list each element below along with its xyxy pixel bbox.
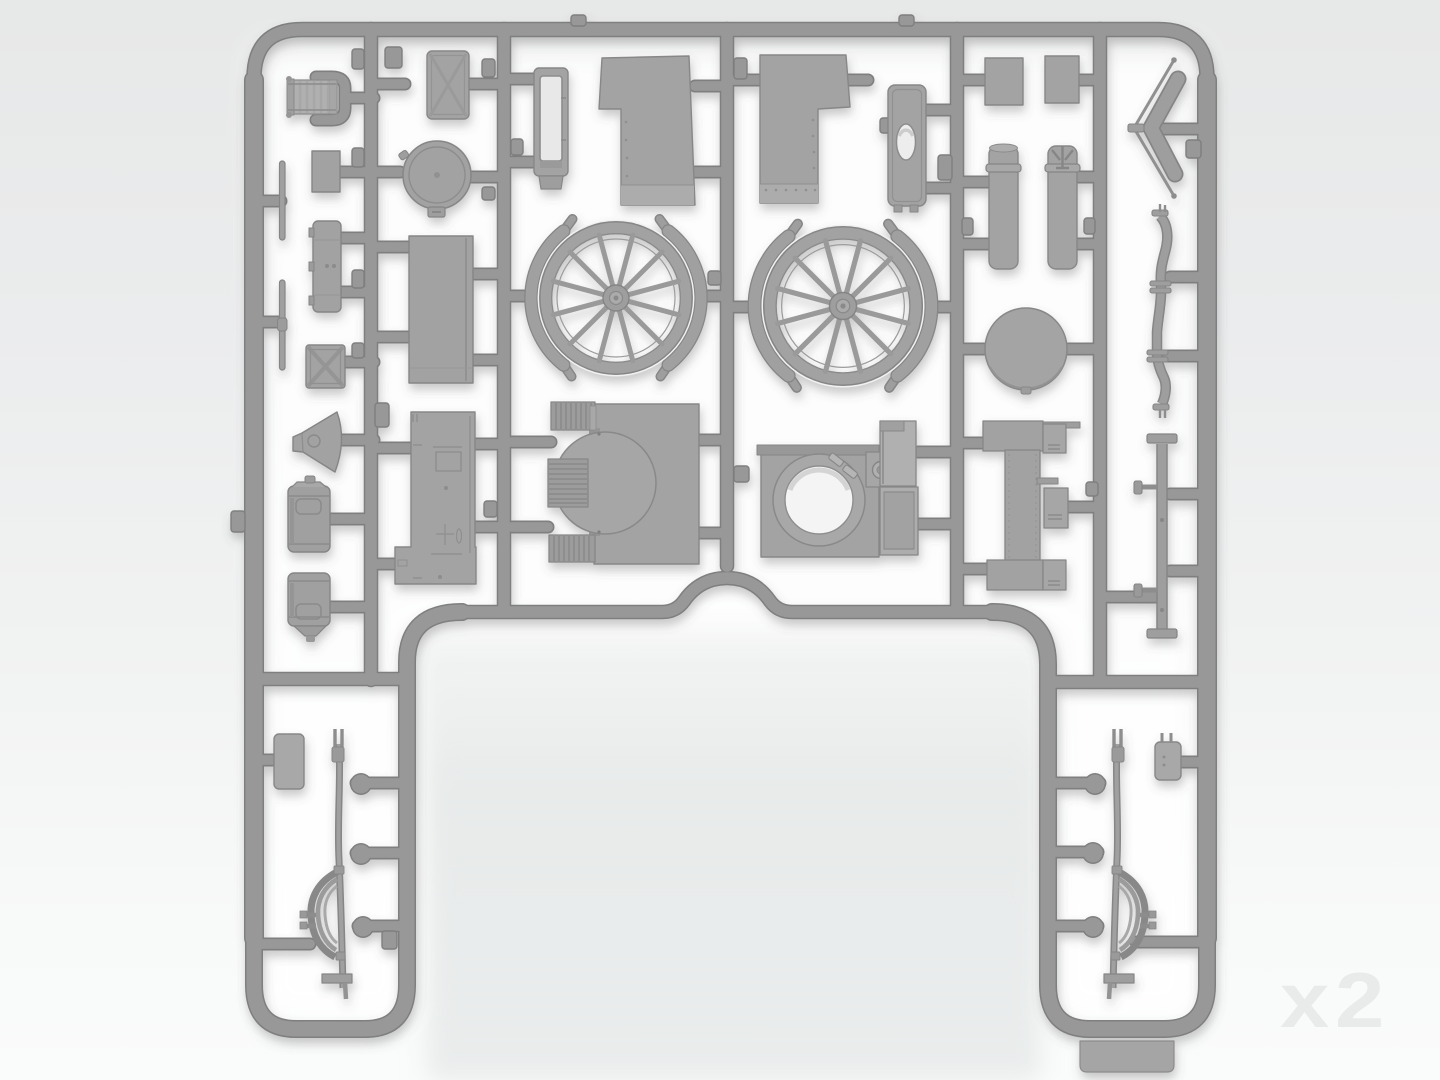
svg-text:x2: x2 — [1280, 956, 1390, 1044]
